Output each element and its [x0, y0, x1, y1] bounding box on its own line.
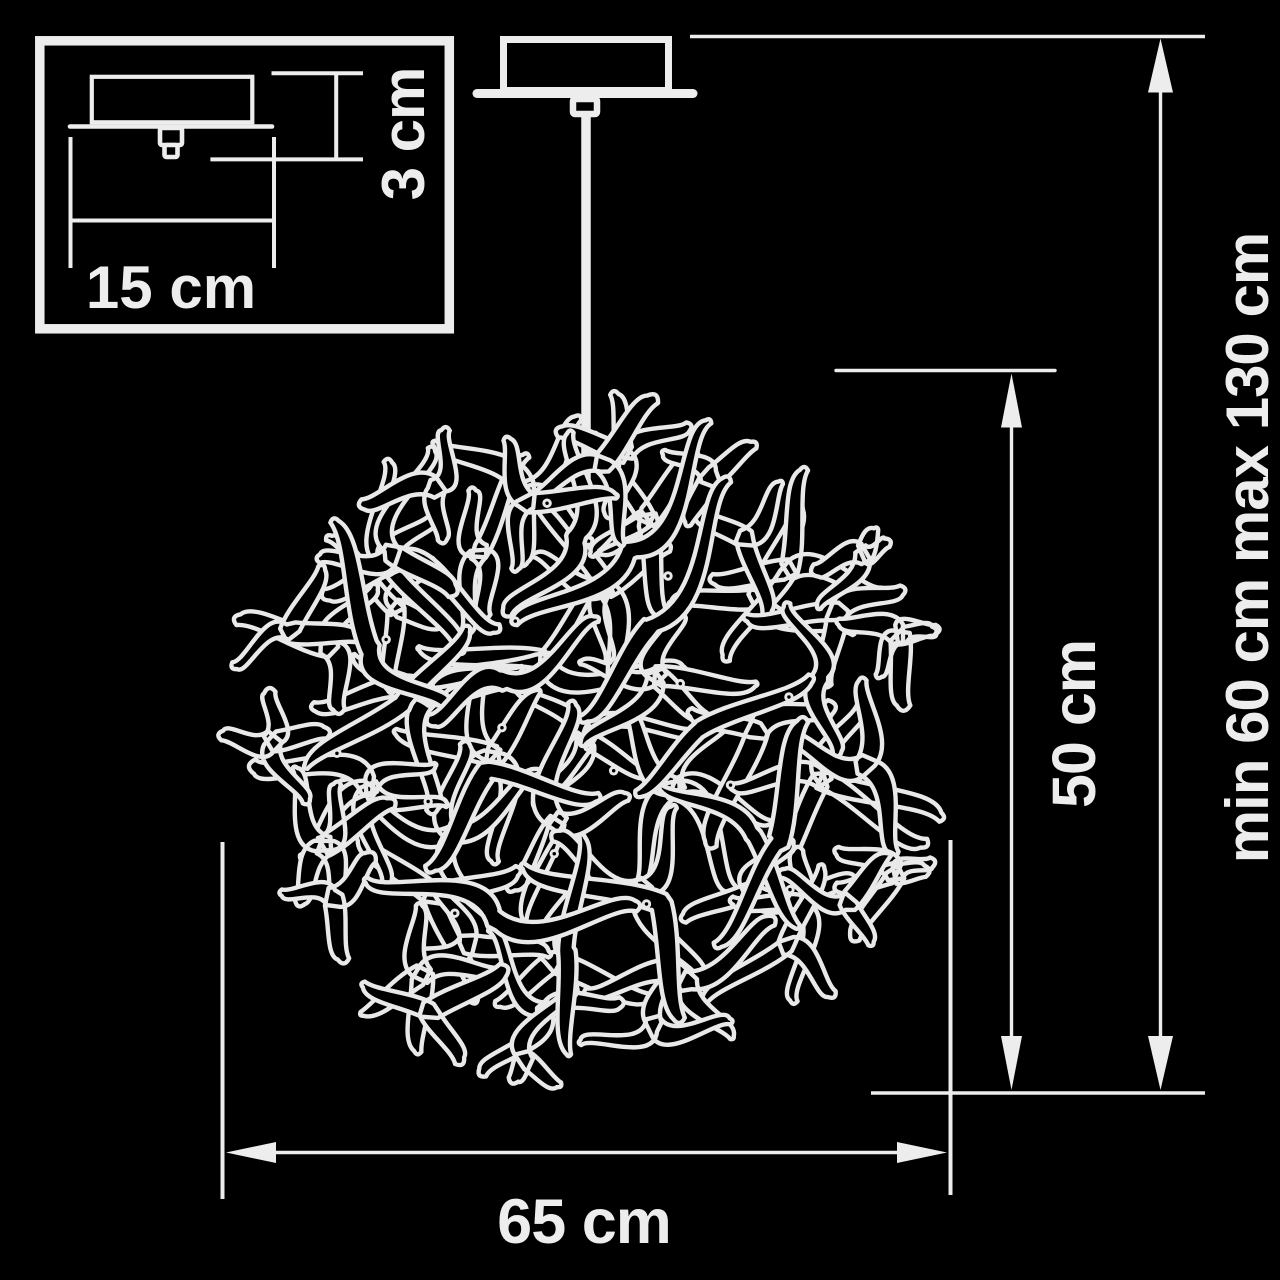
svg-text:3 cm: 3 cm	[370, 68, 437, 201]
svg-text:15 cm: 15 cm	[86, 254, 256, 321]
svg-text:50 cm: 50 cm	[1040, 640, 1108, 808]
svg-text:65 cm: 65 cm	[497, 1187, 671, 1257]
svg-text:min 60 cm max 130 cm: min 60 cm max 130 cm	[1214, 233, 1280, 863]
